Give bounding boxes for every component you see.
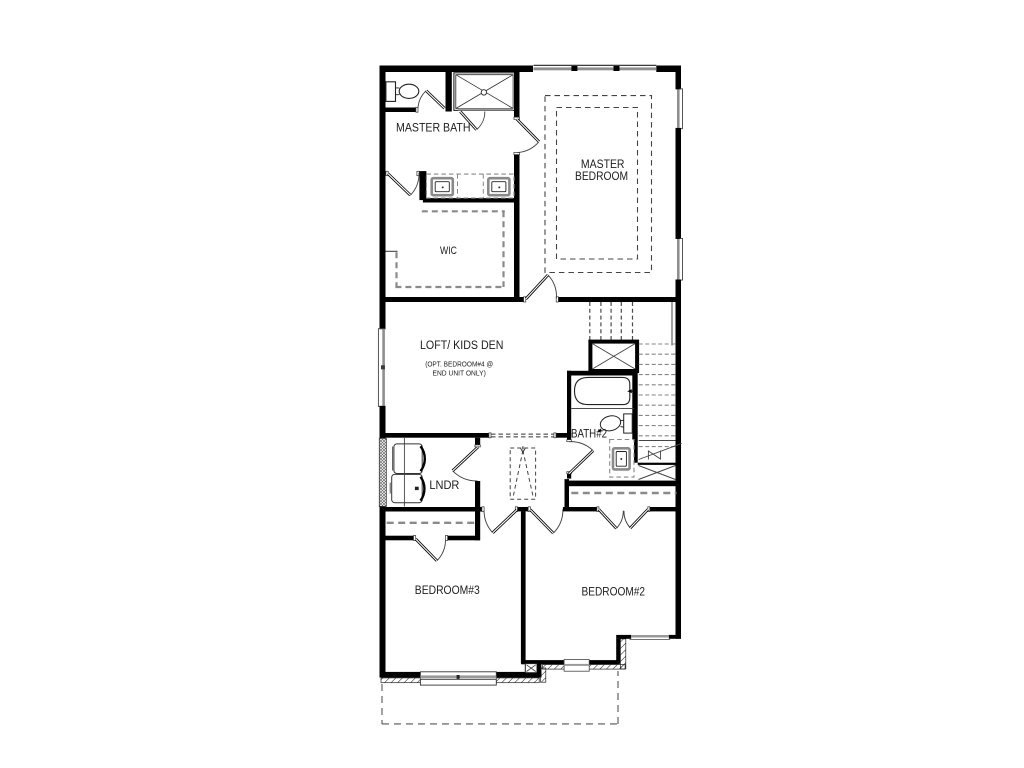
svg-text:(OPT. BEDROOM#4 @: (OPT. BEDROOM#4 @ — [425, 359, 493, 368]
svg-text:LOFT/ KIDS DEN: LOFT/ KIDS DEN — [420, 340, 504, 352]
svg-text:BEDROOM#2: BEDROOM#2 — [582, 584, 646, 598]
svg-text:WIC: WIC — [440, 245, 457, 257]
svg-text:LNDR: LNDR — [429, 478, 459, 492]
svg-text:BATH#2: BATH#2 — [571, 426, 607, 440]
svg-text:MASTER BATH: MASTER BATH — [396, 120, 471, 134]
svg-text:MASTER: MASTER — [581, 159, 625, 171]
svg-text:BEDROOM#3: BEDROOM#3 — [415, 583, 480, 597]
svg-text:END UNIT ONLY): END UNIT ONLY) — [433, 368, 487, 377]
svg-text:BEDROOM: BEDROOM — [575, 171, 628, 183]
